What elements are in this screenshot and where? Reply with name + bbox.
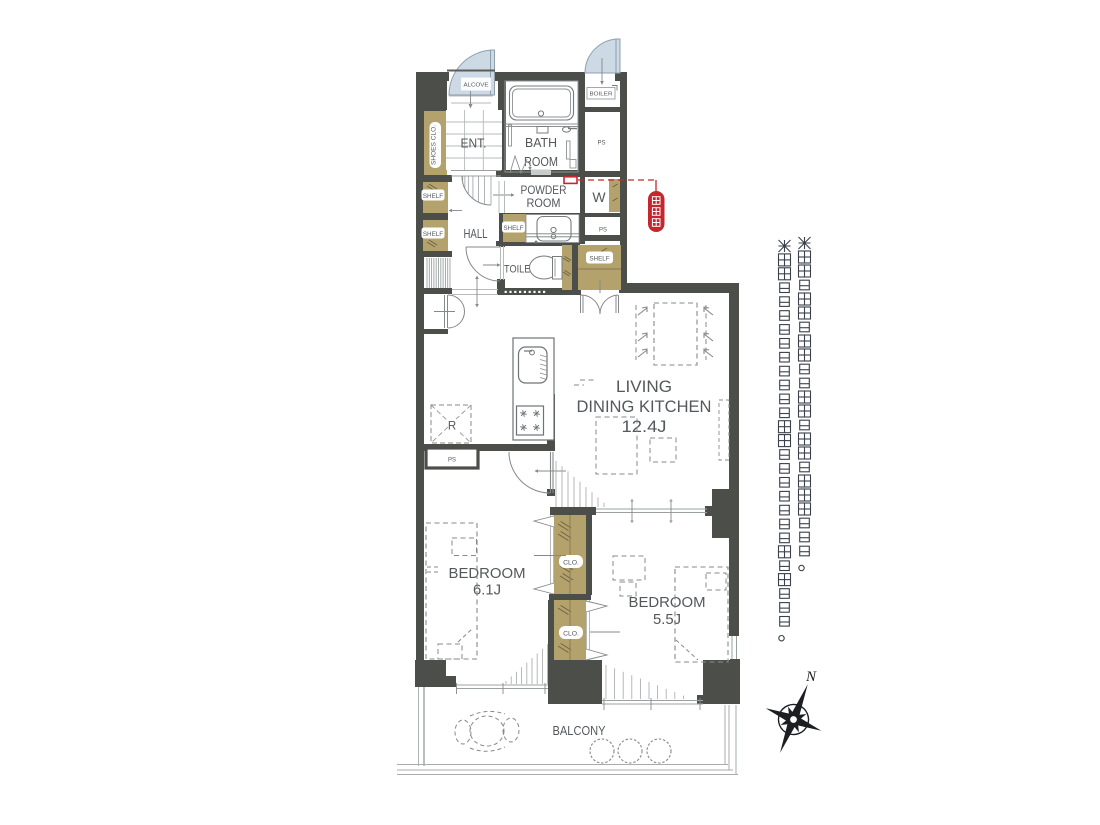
svg-text:W: W (592, 189, 606, 205)
svg-text:N: N (805, 669, 817, 685)
svg-text:R: R (448, 421, 456, 433)
svg-text:SHELF: SHELF (589, 256, 609, 263)
svg-text:BALCONY: BALCONY (553, 724, 607, 738)
svg-text:BEDROOM: BEDROOM (629, 594, 706, 611)
svg-text:DINING KITCHEN: DINING KITCHEN (577, 398, 712, 416)
svg-text:CLO.: CLO. (563, 560, 579, 567)
svg-text:SHELF: SHELF (423, 231, 443, 238)
svg-text:SHELF: SHELF (423, 193, 443, 200)
svg-text:BATH: BATH (525, 136, 557, 150)
svg-text:SHELF: SHELF (503, 225, 523, 232)
svg-text:ENT.: ENT. (461, 136, 487, 151)
svg-text:POWDER: POWDER (521, 185, 567, 197)
svg-text:BOILER: BOILER (590, 92, 613, 98)
svg-text:HALL: HALL (464, 227, 488, 241)
svg-text:5.5J: 5.5J (653, 611, 681, 628)
svg-text:LIVING: LIVING (616, 378, 672, 396)
svg-text:PS: PS (597, 141, 605, 147)
svg-text:ALCOVE: ALCOVE (464, 83, 490, 89)
svg-text:BEDROOM: BEDROOM (449, 565, 526, 582)
svg-text:ROOM: ROOM (524, 155, 558, 169)
svg-text:SHOES CLO.: SHOES CLO. (431, 125, 438, 165)
svg-text:ROOM: ROOM (527, 198, 561, 210)
svg-text:PS: PS (448, 458, 456, 464)
svg-text:PS: PS (599, 228, 607, 234)
svg-text:12.4J: 12.4J (622, 418, 667, 436)
svg-text:CLO.: CLO. (563, 631, 579, 638)
